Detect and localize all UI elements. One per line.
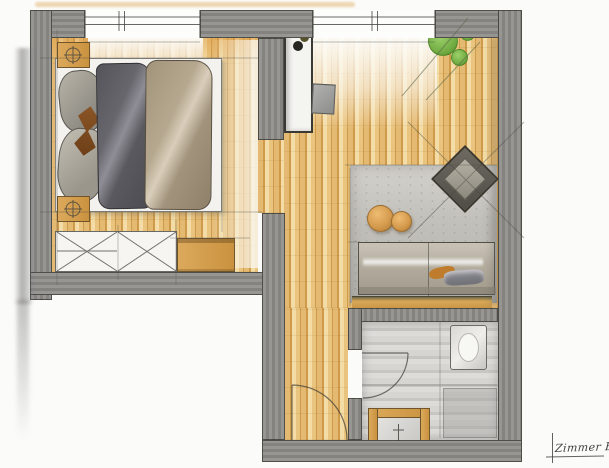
wall-bathroom-left-lower: [348, 398, 362, 440]
exterior-shadow-left: [14, 48, 32, 304]
room-label: Zimmer B: [555, 440, 609, 455]
desk-chair: [311, 83, 336, 114]
desk-object: [293, 41, 303, 51]
wall-bathroom-left-upper: [348, 308, 362, 350]
sofa: [358, 242, 495, 295]
shower-frame-right: [420, 408, 430, 444]
passage-floor: [258, 140, 284, 213]
marker-smear: [35, 2, 355, 7]
wall-hallway-left: [262, 213, 285, 440]
pouf: [367, 205, 394, 232]
duvet-light: [144, 60, 212, 211]
title-block: Zimmer B: [540, 430, 606, 464]
wall-top-pier: [200, 10, 313, 38]
blanket-gray: [444, 269, 485, 287]
sofa-highlight: [363, 257, 483, 267]
sofa-backrest: [359, 287, 496, 294]
dresser: [177, 238, 235, 272]
wall-bathroom-top: [348, 308, 498, 322]
window-bedroom: [85, 10, 200, 38]
plant-leaf: [451, 49, 468, 66]
shower-frame-left: [368, 408, 378, 444]
window-living: [313, 10, 435, 38]
wall-left: [30, 10, 52, 300]
wall-bedroom-bottom: [30, 272, 285, 295]
wall-bottom: [262, 440, 522, 462]
hallway-floor: [285, 308, 348, 440]
floor-plan-canvas: Zimmer B: [0, 0, 609, 468]
washbasin: [450, 325, 487, 370]
nightstand: [57, 196, 90, 222]
wall-right: [498, 10, 522, 462]
wardrobe: [55, 231, 177, 272]
exterior-shadow-left-lower: [17, 300, 29, 440]
title-block-underline: [546, 455, 604, 457]
bath-mat-zone: [443, 388, 497, 438]
wall-stub-desk: [258, 38, 284, 140]
nightstand: [57, 42, 90, 68]
title-block-tick: [552, 433, 553, 463]
armchair-cushion: [444, 158, 486, 200]
inner-wall-shadow: [486, 38, 498, 306]
pouf: [391, 211, 412, 232]
